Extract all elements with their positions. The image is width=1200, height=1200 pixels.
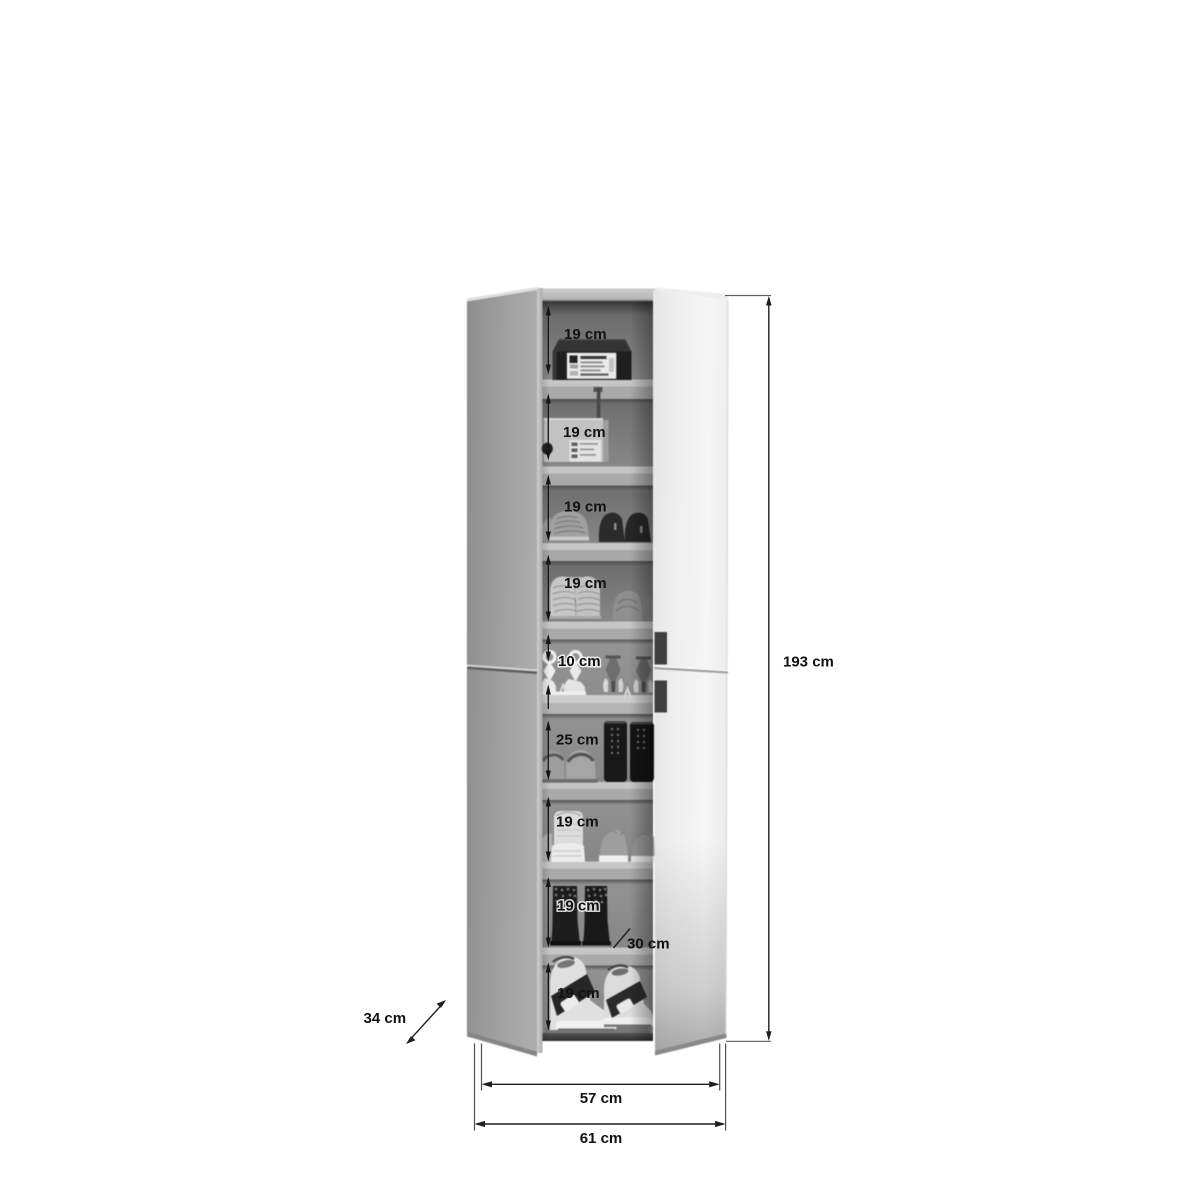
svg-text:30 cm: 30 cm (627, 936, 670, 953)
svg-text:19 cm: 19 cm (556, 813, 599, 830)
svg-text:10 cm: 10 cm (558, 653, 601, 670)
svg-text:34 cm: 34 cm (364, 1010, 407, 1027)
svg-text:61 cm: 61 cm (580, 1130, 623, 1147)
svg-text:19 cm: 19 cm (557, 898, 600, 915)
svg-text:19 cm: 19 cm (564, 326, 607, 343)
svg-text:19 cm: 19 cm (564, 575, 607, 592)
svg-text:57 cm: 57 cm (580, 1090, 623, 1107)
svg-text:19 cm: 19 cm (564, 498, 607, 515)
svg-text:25 cm: 25 cm (556, 731, 599, 748)
svg-text:193 cm: 193 cm (783, 653, 834, 670)
svg-text:19 cm: 19 cm (563, 424, 606, 441)
svg-text:19 cm: 19 cm (557, 985, 600, 1002)
